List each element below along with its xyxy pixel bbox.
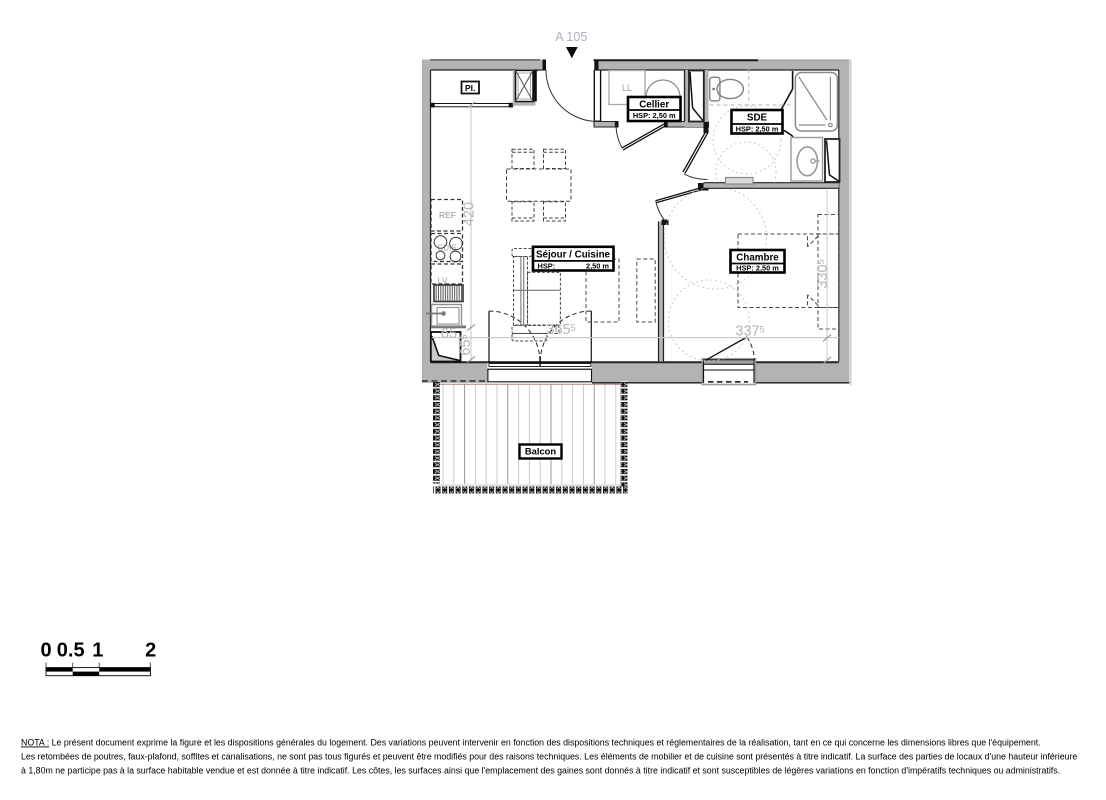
svg-text:à 1,80m ne participe pas à la: à 1,80m ne participe pas à la surface ha… <box>21 766 1060 776</box>
svg-text:1: 1 <box>92 640 103 662</box>
svg-text:HSP: 2,50 m: HSP: 2,50 m <box>736 124 779 133</box>
svg-text:NOTA : Le présent document exp: NOTA : Le présent document exprime la fi… <box>21 738 1041 748</box>
svg-text:0.5: 0.5 <box>57 640 85 662</box>
svg-text:HSP:: HSP: <box>538 262 556 271</box>
svg-text:Pl.: Pl. <box>465 83 475 93</box>
svg-text:Cellier: Cellier <box>639 99 669 110</box>
svg-text:Balcon: Balcon <box>525 446 557 457</box>
svg-text:Séjour / Cuisine: Séjour / Cuisine <box>536 250 611 261</box>
svg-text:LL: LL <box>622 83 632 93</box>
svg-text:0: 0 <box>40 640 51 662</box>
svg-text:Chambre: Chambre <box>736 252 779 263</box>
svg-text:HSP: 2,50 m: HSP: 2,50 m <box>633 111 676 120</box>
svg-text:REF: REF <box>439 210 456 220</box>
svg-text:2,50 m: 2,50 m <box>586 262 609 271</box>
svg-text:65: 65 <box>441 326 457 342</box>
svg-text:LV: LV <box>438 276 448 286</box>
svg-text:Les retombées de poutres, faux: Les retombées de poutres, faux-plafond, … <box>21 752 1077 762</box>
svg-text:420: 420 <box>462 202 478 226</box>
svg-text:HSP: 2,50 m: HSP: 2,50 m <box>736 264 779 273</box>
svg-text:SDE: SDE <box>747 113 768 124</box>
svg-text:2: 2 <box>145 640 156 662</box>
svg-text:A 105: A 105 <box>555 30 587 44</box>
